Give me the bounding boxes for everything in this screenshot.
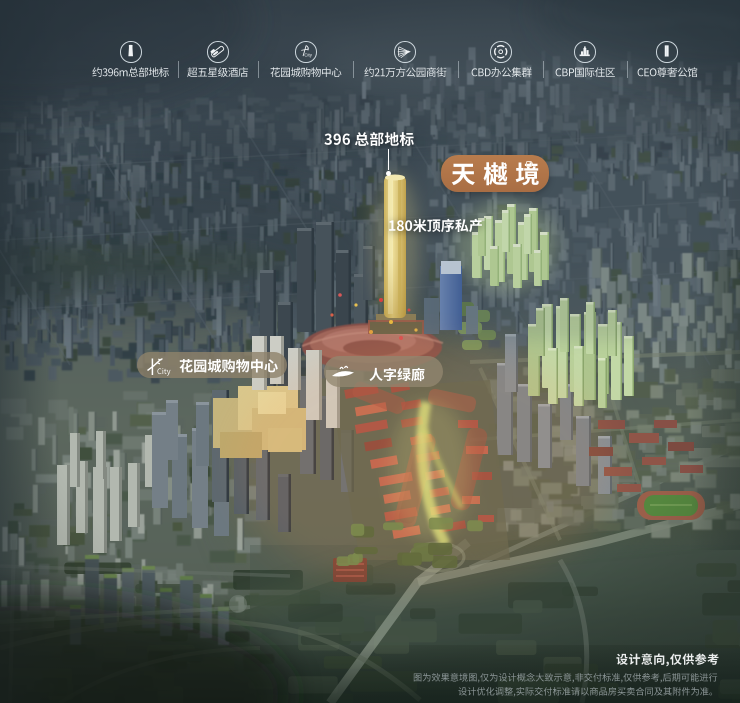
svg-text:City: City (305, 53, 313, 58)
